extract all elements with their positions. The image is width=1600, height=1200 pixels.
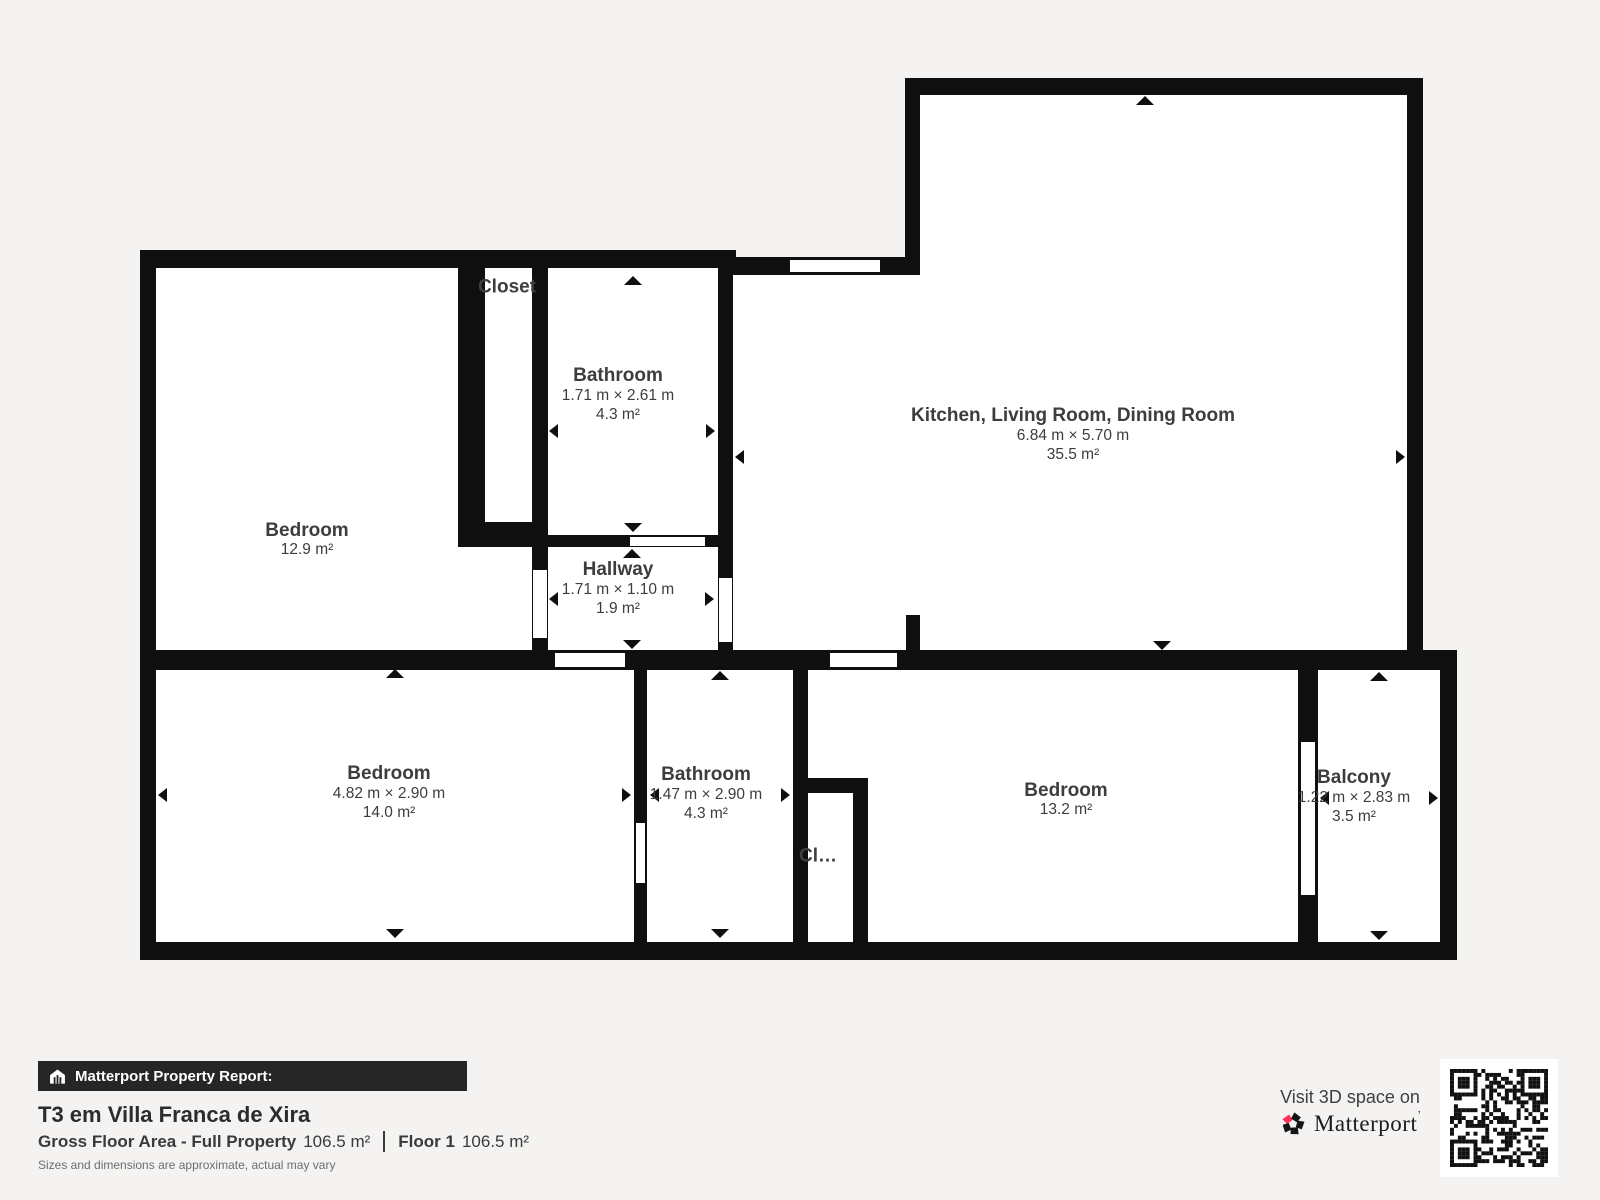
room-floor	[905, 78, 1423, 670]
room-label-bedroom-bottom-left: Bedroom 4.82 m × 2.90 m 14.0 m²	[333, 764, 445, 822]
wall	[634, 650, 647, 960]
disclaimer-text: Sizes and dimensions are approximate, ac…	[38, 1158, 335, 1172]
dimension-arrow	[706, 424, 715, 438]
qr-code-image	[1450, 1069, 1548, 1167]
dimension-arrow	[1370, 931, 1388, 940]
room-area: 3.5 m²	[1298, 807, 1410, 826]
dimension-arrow	[711, 671, 729, 680]
floor-plan-report: Bedroom 12.9 m² Closet Bathroom 1.71 m ×…	[0, 0, 1600, 1200]
room-label-bedroom-top-left: Bedroom 12.9 m²	[265, 521, 348, 559]
room-label-balcony: Balcony 1.22 m × 2.83 m 3.5 m²	[1298, 768, 1410, 826]
dimension-arrow	[622, 788, 631, 802]
room-area: 4.3 m²	[650, 804, 762, 823]
room-label-closet-bottom: Cl…	[799, 847, 837, 866]
room-label-bathroom-top: Bathroom 1.71 m × 2.61 m 4.3 m²	[562, 366, 674, 424]
room-name: Bedroom	[265, 521, 348, 540]
wall	[1440, 650, 1457, 960]
house-icon	[49, 1068, 66, 1085]
dimension-arrow	[1136, 96, 1154, 105]
room-label-closet-top: Closet	[478, 278, 536, 297]
matterport-logo: Matterport ’	[1279, 1110, 1421, 1138]
wall	[905, 78, 1423, 95]
dimension-arrow	[711, 929, 729, 938]
room-name: Bedroom	[1024, 781, 1107, 800]
gross-floor-area-label: Gross Floor Area - Full Property	[38, 1132, 296, 1152]
door-opening	[555, 653, 625, 667]
room-name: Bathroom	[562, 366, 674, 385]
dimension-arrow	[624, 523, 642, 532]
room-name: Closet	[478, 278, 536, 297]
qr-code	[1440, 1059, 1558, 1177]
wall	[140, 250, 736, 268]
room-label-bathroom-bottom: Bathroom 1.47 m × 2.90 m 4.3 m²	[650, 765, 762, 823]
floor-label: Floor 1	[398, 1132, 455, 1152]
dimension-arrow	[1429, 791, 1438, 805]
room-area: 4.3 m²	[562, 405, 674, 424]
room-label-bedroom-bottom-right: Bedroom 13.2 m²	[1024, 781, 1107, 819]
matterport-wordmark: Matterport	[1314, 1111, 1417, 1137]
wall	[905, 78, 920, 275]
door-opening	[533, 570, 547, 638]
dimension-arrow	[623, 640, 641, 649]
dimension-arrow	[735, 450, 744, 464]
report-header-text: Matterport Property Report:	[75, 1068, 273, 1085]
property-title: T3 em Villa Franca de Xira	[38, 1102, 310, 1128]
room-name: Hallway	[562, 560, 674, 579]
room-dimensions: 6.84 m × 5.70 m	[911, 426, 1235, 445]
floor-area-summary: Gross Floor Area - Full Property 106.5 m…	[38, 1131, 529, 1152]
door-opening	[830, 653, 897, 667]
door-opening	[630, 537, 705, 546]
wall	[853, 778, 868, 942]
dimension-arrow	[1370, 672, 1388, 681]
dimension-arrow	[158, 788, 167, 802]
room-label-kitchen-living-dining: Kitchen, Living Room, Dining Room 6.84 m…	[911, 406, 1235, 464]
door-opening	[636, 823, 645, 883]
room-area: 1.9 m²	[562, 599, 674, 618]
dimension-arrow	[781, 788, 790, 802]
room-label-hallway: Hallway 1.71 m × 1.10 m 1.9 m²	[562, 560, 674, 618]
room-name: Bathroom	[650, 765, 762, 784]
room-dimensions: 1.71 m × 1.10 m	[562, 580, 674, 599]
dimension-arrow	[549, 592, 558, 606]
window-opening	[790, 260, 880, 272]
dimension-arrow	[705, 592, 714, 606]
visit-3d-text: Visit 3D space on	[1280, 1087, 1420, 1108]
room-area: 13.2 m²	[1024, 800, 1107, 819]
floor-value: 106.5 m²	[462, 1132, 529, 1152]
dimension-arrow	[623, 549, 641, 558]
divider	[383, 1131, 385, 1152]
room-dimensions: 4.82 m × 2.90 m	[333, 784, 445, 803]
dimension-arrow	[1153, 641, 1171, 650]
matterport-pinwheel-icon	[1279, 1110, 1307, 1138]
room-name: Balcony	[1298, 768, 1410, 787]
wall	[906, 615, 920, 650]
dimension-arrow	[624, 276, 642, 285]
room-name: Kitchen, Living Room, Dining Room	[911, 406, 1235, 425]
room-area: 35.5 m²	[911, 445, 1235, 464]
room-area: 14.0 m²	[333, 803, 445, 822]
dimension-arrow	[549, 424, 558, 438]
dimension-arrow	[386, 669, 404, 678]
wall	[140, 250, 156, 960]
dimension-arrow	[1396, 450, 1405, 464]
door-opening	[719, 578, 732, 642]
room-name: Bedroom	[333, 764, 445, 783]
report-header-bar: Matterport Property Report:	[38, 1061, 467, 1091]
room-floor	[718, 257, 920, 670]
wall	[1407, 78, 1423, 670]
wall	[793, 650, 808, 960]
room-dimensions: 1.71 m × 2.61 m	[562, 386, 674, 405]
room-name: Cl…	[799, 847, 837, 866]
room-dimensions: 1.22 m × 2.83 m	[1298, 788, 1410, 807]
room-dimensions: 1.47 m × 2.90 m	[650, 785, 762, 804]
dimension-arrow	[386, 929, 404, 938]
room-area: 12.9 m²	[265, 540, 348, 559]
gross-floor-area-value: 106.5 m²	[303, 1132, 370, 1152]
trademark-mark: ’	[1417, 1109, 1421, 1121]
